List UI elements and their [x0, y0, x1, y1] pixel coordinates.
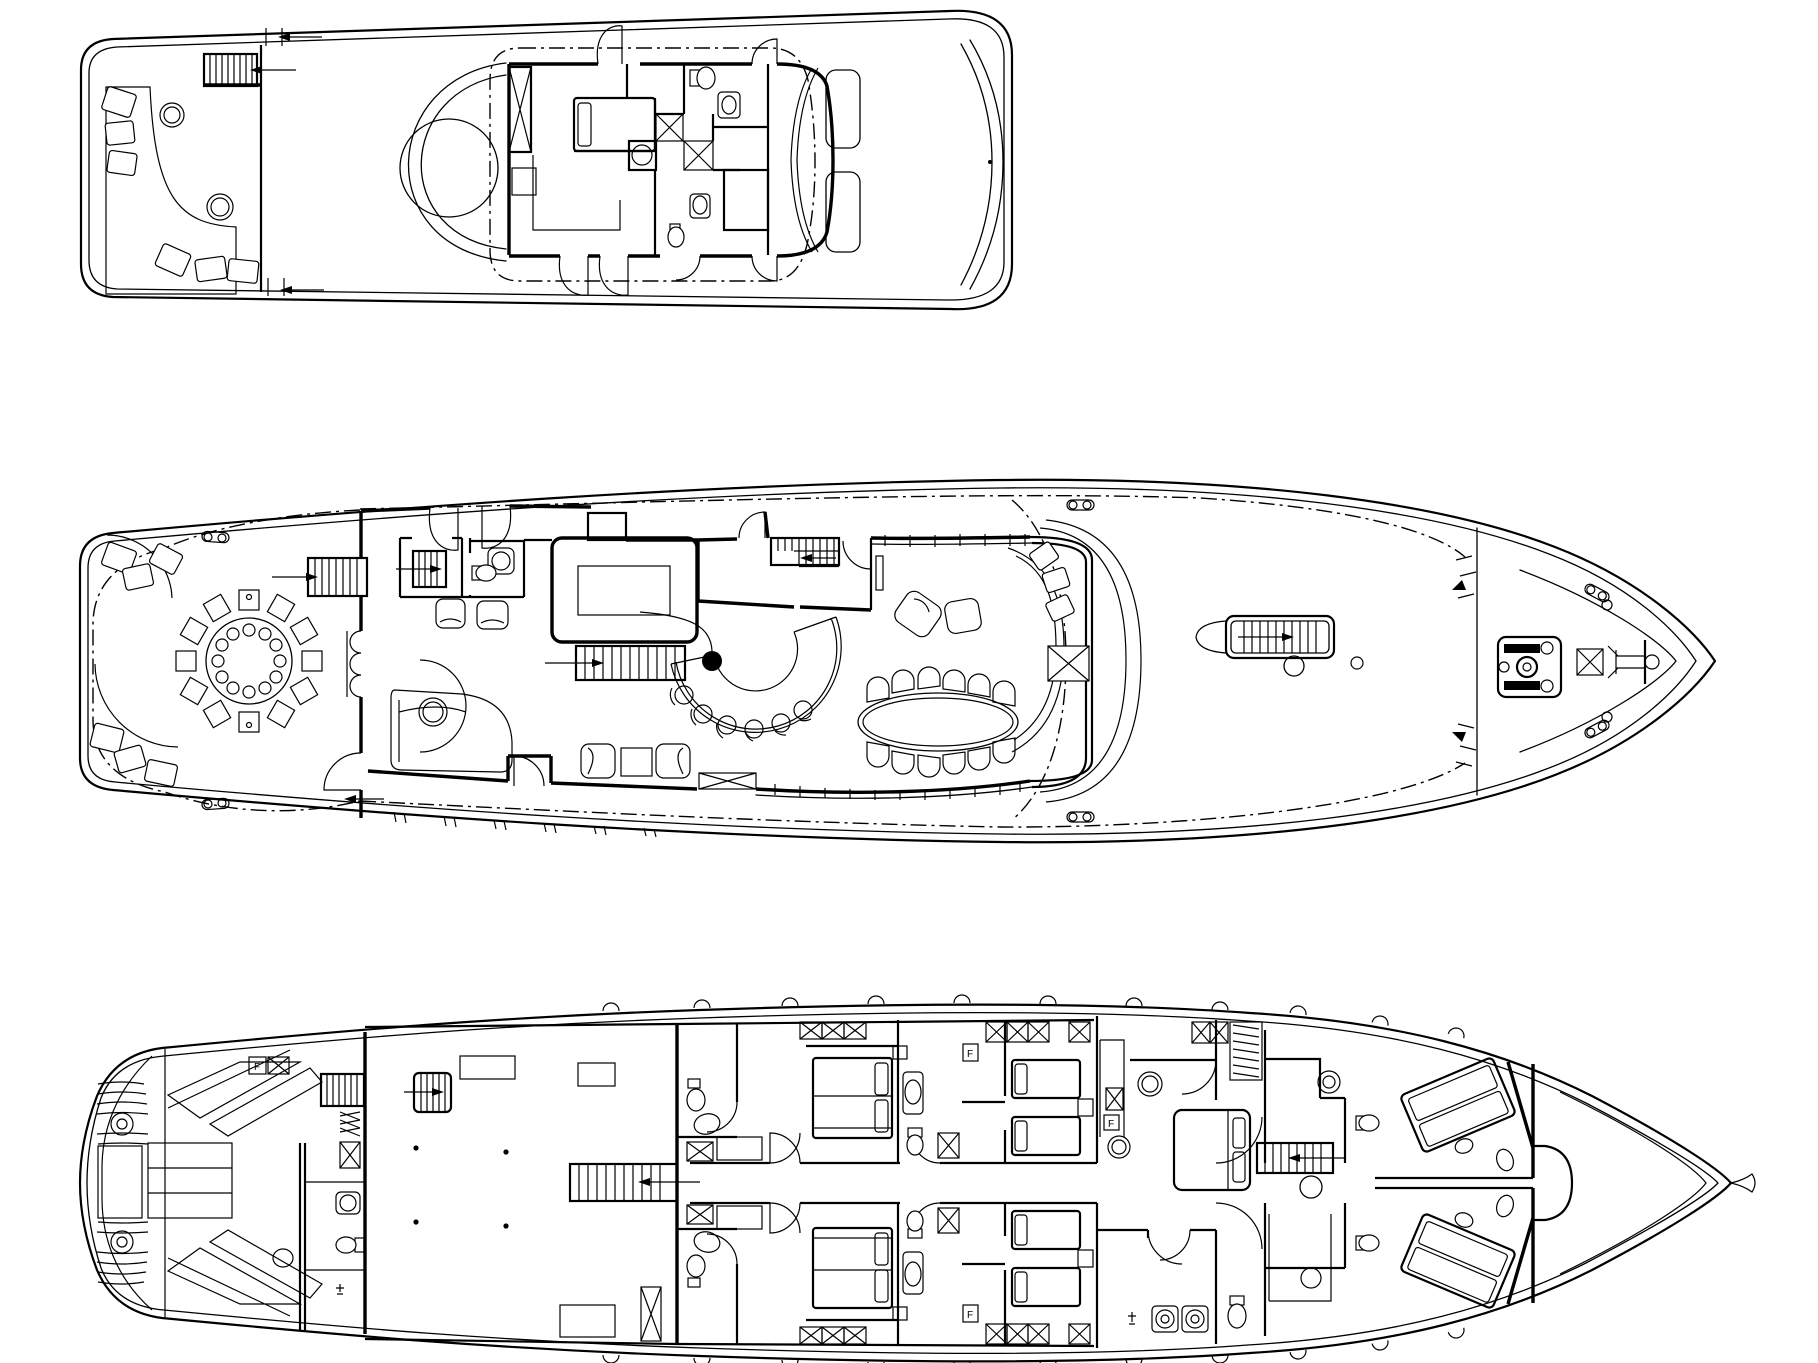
svg-text:F: F: [1108, 1119, 1114, 1130]
svg-text:F: F: [967, 1049, 973, 1060]
svg-text:F: F: [254, 1062, 260, 1073]
svg-text:F: F: [967, 1310, 973, 1321]
